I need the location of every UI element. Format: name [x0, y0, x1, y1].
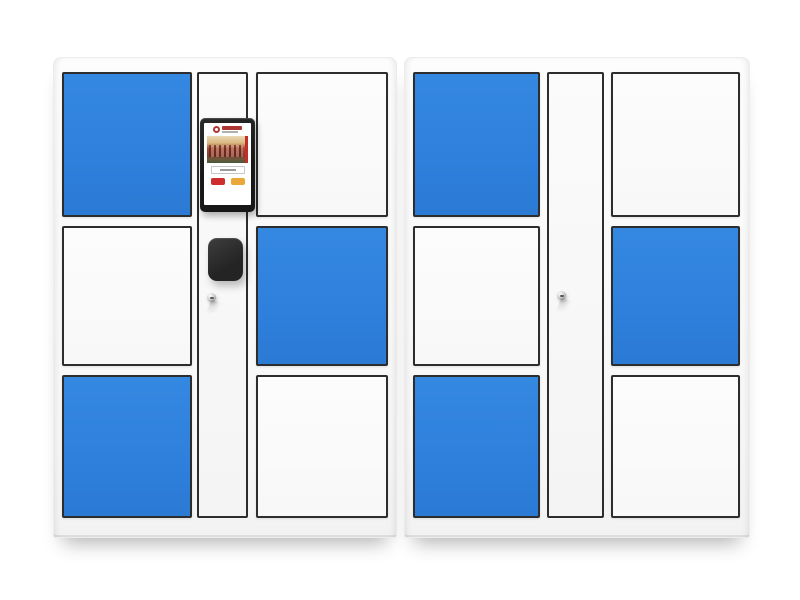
screen-button-row [204, 178, 251, 185]
locker-scene [0, 0, 800, 600]
locker-door [62, 226, 192, 366]
locker-door [611, 375, 740, 518]
red-button [211, 178, 225, 185]
locker-door [256, 72, 388, 217]
locker-door [611, 226, 740, 366]
screen-input-row [204, 166, 251, 174]
console-panel [547, 72, 604, 518]
locker-cabinet-right [404, 57, 750, 538]
locker-door [62, 375, 192, 518]
university-logo [204, 123, 251, 136]
input-placeholder-marks [220, 169, 236, 171]
locker-door [62, 72, 192, 217]
kiosk-display [204, 123, 251, 205]
locker-door [413, 72, 540, 217]
locker-cabinet-left [53, 57, 397, 538]
locker-door [611, 72, 740, 217]
locker-door [256, 226, 388, 366]
university-seal-icon [213, 126, 220, 133]
locker-door [256, 375, 388, 518]
campus-photo [207, 136, 248, 163]
yellow-button [231, 178, 245, 185]
locker-door [413, 375, 540, 518]
kiosk-screen [200, 118, 255, 212]
qr-scanner [208, 238, 243, 281]
keyhole-lock [207, 293, 216, 302]
university-logo-text [222, 126, 242, 133]
logo-title-line [222, 126, 242, 130]
logo-subtitle-line [222, 131, 238, 133]
keyhole-lock [557, 291, 566, 300]
code-input-box [211, 166, 245, 174]
locker-door [413, 226, 540, 366]
